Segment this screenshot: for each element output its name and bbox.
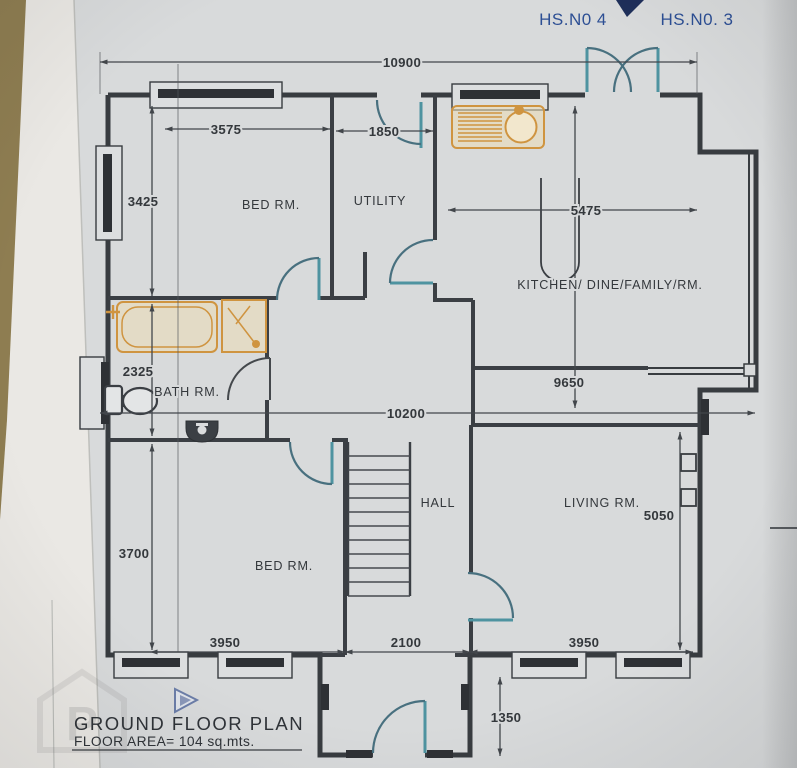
floorplan-photo: P — [0, 0, 797, 768]
floorplan-drawing: P — [0, 0, 797, 768]
vignette — [0, 0, 797, 768]
